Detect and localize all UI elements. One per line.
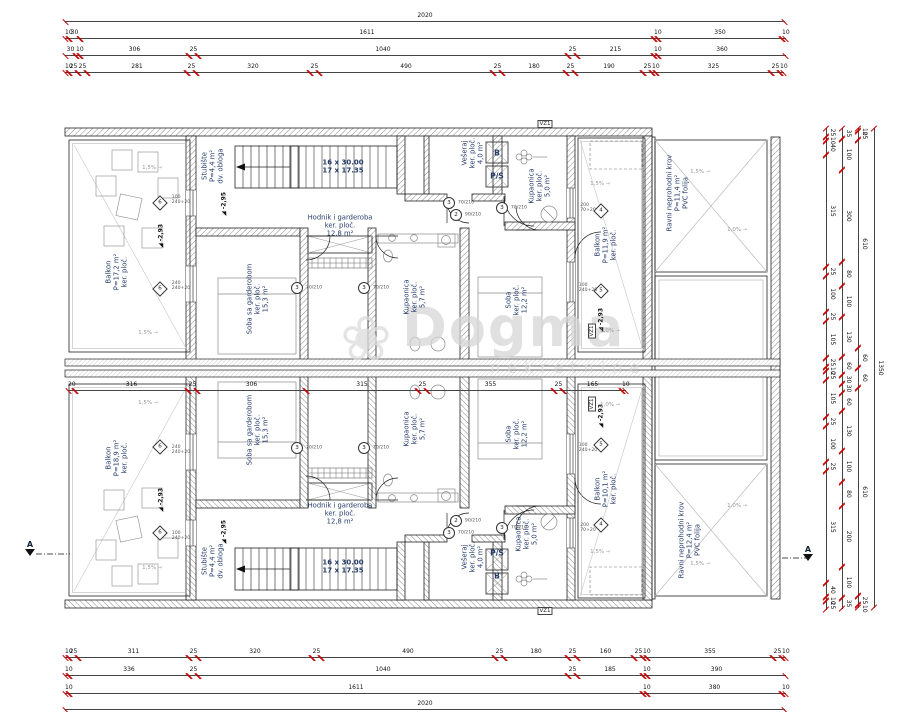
- door-size-note: 70/210: [511, 525, 527, 530]
- room-label: Kupaonica ker. ploč. 5,0 m²: [515, 516, 538, 551]
- dimension-label: 325: [656, 63, 771, 73]
- door-tag: 3: [443, 197, 455, 209]
- dimension-label: 100: [826, 276, 836, 312]
- appliance-label: P/S: [490, 549, 504, 558]
- appliance-label: P/S: [490, 172, 504, 181]
- window-tag: 6: [155, 528, 166, 539]
- plan-linework: [0, 0, 914, 712]
- room-label: Soba ker. ploč. 12,2 m²: [505, 419, 528, 450]
- window-size-note: 240 240+20: [172, 281, 190, 291]
- slope-label: 1,0%: [727, 503, 747, 509]
- dimension-label: 300: [842, 170, 852, 262]
- window-tag: 6: [155, 198, 166, 209]
- door-tag: 3: [358, 282, 370, 294]
- dimension-label: 350: [658, 29, 782, 39]
- room-label: Balkon P=11,9 m² ker. ploč.: [594, 227, 617, 263]
- dimension-label: 130: [842, 317, 852, 357]
- dimension-label: 25: [826, 601, 836, 610]
- dimension-label: 490: [319, 63, 493, 73]
- slope-label: 1,5%: [142, 565, 162, 571]
- dimension-label: 10: [780, 63, 784, 73]
- dimension-label: 355: [427, 381, 554, 391]
- slope-label: 1,5%: [590, 549, 610, 555]
- room-label: Balkon P=17,2 m² ker. ploč.: [105, 254, 128, 290]
- room-label: Ravni neprohodni krov P=11,4 m² PVC foli…: [666, 155, 689, 232]
- dimension-label: 1040: [198, 46, 568, 56]
- dimension-label: 10: [782, 648, 786, 658]
- level-marker: -2,95: [221, 520, 228, 544]
- dimension-label: 320: [196, 63, 310, 73]
- dimension-label: 190: [575, 63, 643, 73]
- dim-chain-right-3: 102561060606102510: [858, 128, 868, 608]
- door-size-note: 70/210: [306, 445, 322, 450]
- door-size-note: 90/210: [465, 518, 481, 523]
- room-label: Vešeraj ker. ploč. 4,0 m²: [461, 138, 484, 169]
- dimension-label: 180: [502, 63, 566, 73]
- level-marker: -2,93: [158, 488, 165, 512]
- dimension-label: 311: [78, 648, 189, 658]
- slope-label: 1,5%: [138, 330, 158, 336]
- slope-label: 1,5%: [142, 165, 162, 171]
- dimension-label: 320: [198, 648, 312, 658]
- dimension-label: 215: [577, 46, 654, 56]
- window-size-note: 240 240+20: [172, 445, 190, 455]
- dimension-label: 100: [842, 139, 852, 170]
- section-marker: A: [24, 540, 36, 556]
- room-label: Balkon P=10,1 m² ker. ploč.: [594, 471, 617, 507]
- dimension-label: 10: [858, 605, 868, 608]
- window-size-note: 100 240+20: [172, 195, 190, 205]
- window-size-note: 100 240+20: [172, 531, 190, 541]
- dimension-label: 1040: [198, 666, 568, 676]
- dimension-label: 1611: [69, 684, 643, 694]
- stair-spec-label: 16 x 30.00 17 x 17.35: [322, 159, 363, 176]
- appliance-label: B: [494, 572, 500, 581]
- slope-label: 1,5%: [690, 561, 710, 567]
- slope-label: 1,0%: [727, 227, 747, 233]
- dimension-label: 100: [842, 286, 852, 317]
- dimension-label: 10: [782, 684, 786, 694]
- door-tag: 3: [496, 522, 508, 534]
- room-label: Soba sa garderobom ker. ploč. 15,3 m²: [246, 395, 269, 466]
- room-label: Stubište P=4,4 m² dv. obloga: [201, 543, 224, 578]
- room-label: Kupaonica ker. ploč. 5,7 m²: [403, 411, 426, 446]
- door-tag: 3: [358, 442, 370, 454]
- room-label: Hodnik i garderoba ker. ploč. 12,8 m²: [308, 502, 373, 525]
- window-size-note: 100 240+20: [579, 443, 597, 453]
- dim-chain-right-1: 2510403152510025105251025105251002531540…: [826, 128, 836, 608]
- dimension-label: 180: [504, 648, 568, 658]
- room-label: Stubište P=4,4 m² dv. obloga: [201, 148, 224, 183]
- dimension-label: 10: [782, 29, 786, 39]
- dimension-label: 35: [842, 598, 852, 609]
- dimension-label: 360: [658, 46, 786, 56]
- window-size-note: 200 70+20: [580, 203, 596, 213]
- dimension-label: 610: [858, 388, 868, 596]
- room-label: Kupaonica ker. ploč. 5,7 m²: [403, 279, 426, 314]
- room-label: Hodnik i garderoba ker. ploč. 12,8 m²: [308, 214, 373, 237]
- vent-shaft-label: VZ1: [537, 120, 552, 128]
- door-size-note: 70/210: [306, 285, 322, 290]
- stair-spec-label: 16 x 30.00 17 x 17.35: [322, 559, 363, 576]
- dimension-label: 355: [647, 648, 773, 658]
- dimension-label: 105: [826, 321, 836, 358]
- room-label: Vešeraj ker. ploč. 4,0 m²: [461, 542, 484, 573]
- door-size-note: 90/210: [465, 212, 481, 217]
- dimension-label: 100: [826, 426, 836, 462]
- dimension-label: 165: [563, 381, 622, 391]
- door-tag: 3: [443, 527, 455, 539]
- dimension-label: 306: [197, 381, 306, 391]
- window-tag: 6: [155, 442, 166, 453]
- dimension-label: 1350: [874, 128, 884, 608]
- dimension-label: 316: [75, 381, 188, 391]
- dimension-label: 315: [826, 471, 836, 583]
- door-tag: 3: [291, 282, 303, 294]
- appliance-label: B: [494, 149, 500, 158]
- door-size-note: 70/210: [458, 200, 474, 205]
- level-marker: -2,93: [158, 224, 165, 248]
- dimension-label: 2020: [65, 12, 785, 22]
- window-tag: 6: [155, 284, 166, 295]
- dimension-label: 315: [826, 155, 836, 267]
- dimension-label: 281: [87, 63, 187, 73]
- dimension-label: 336: [69, 666, 189, 676]
- vent-shaft-label: VZ1: [588, 396, 596, 411]
- dimension-label: 10: [622, 381, 626, 391]
- slope-label: 1,5%: [690, 169, 710, 175]
- door-size-note: 70/210: [373, 445, 389, 450]
- dim-chain-right-total: 1350: [874, 128, 884, 608]
- slope-label: 1,5%: [138, 400, 158, 406]
- dimension-label: 490: [321, 648, 495, 658]
- room-label: Soba ker. ploč. 12,2 m²: [505, 285, 528, 316]
- door-size-note: 70/210: [458, 530, 474, 535]
- section-marker: A: [802, 545, 814, 561]
- door-tag: 3: [291, 442, 303, 454]
- door-tag: 3: [496, 202, 508, 214]
- room-label: Kupaonica ker. ploč. 5,0 m²: [528, 168, 551, 203]
- dimension-label: 100: [842, 567, 852, 598]
- window-tag: 4: [596, 206, 607, 217]
- dimension-label: 100: [842, 451, 852, 482]
- dimension-label: 390: [647, 666, 786, 676]
- door-tag: 2: [450, 209, 462, 221]
- window-size-note: 100 240+20: [579, 283, 597, 293]
- dimension-label: 610: [858, 140, 868, 348]
- slope-label: 1,0%: [600, 328, 620, 334]
- door-size-note: 70/210: [373, 285, 389, 290]
- dimension-label: 105: [826, 380, 836, 417]
- dimension-label: 130: [842, 411, 852, 451]
- door-size-note: 70/210: [511, 205, 527, 210]
- room-label: Soba sa garderobom ker. ploč. 15,3 m²: [246, 264, 269, 335]
- slope-label: 1,0%: [600, 402, 620, 408]
- dimension-label: 306: [80, 46, 189, 56]
- vent-shaft-label: VZ1: [588, 323, 596, 338]
- dimension-label: 160: [577, 648, 634, 658]
- dimension-label: 200: [842, 506, 852, 567]
- dimension-label: 185: [577, 666, 643, 676]
- vent-shaft-label: VZ1: [537, 607, 552, 615]
- dim-chain-right-2: 3510030080100130603030601301008020010035: [842, 128, 852, 608]
- window-tag: 4: [596, 520, 607, 531]
- window-size-note: 200 70+20: [580, 523, 596, 533]
- room-label: Balkon P=18,9 m² ker. ploč.: [105, 440, 128, 476]
- floor-plan-canvas: ❀ Dogma nekretnine 2020 103016111035010 …: [0, 0, 914, 712]
- dimension-label: 1611: [80, 29, 654, 39]
- door-tag: 2: [450, 515, 462, 527]
- level-marker: -2,95: [221, 192, 228, 216]
- dimension-label: 315: [306, 381, 418, 391]
- dimension-label: 380: [647, 684, 782, 694]
- slope-label: 1,5%: [590, 181, 610, 187]
- dimension-label: 2020: [65, 700, 785, 710]
